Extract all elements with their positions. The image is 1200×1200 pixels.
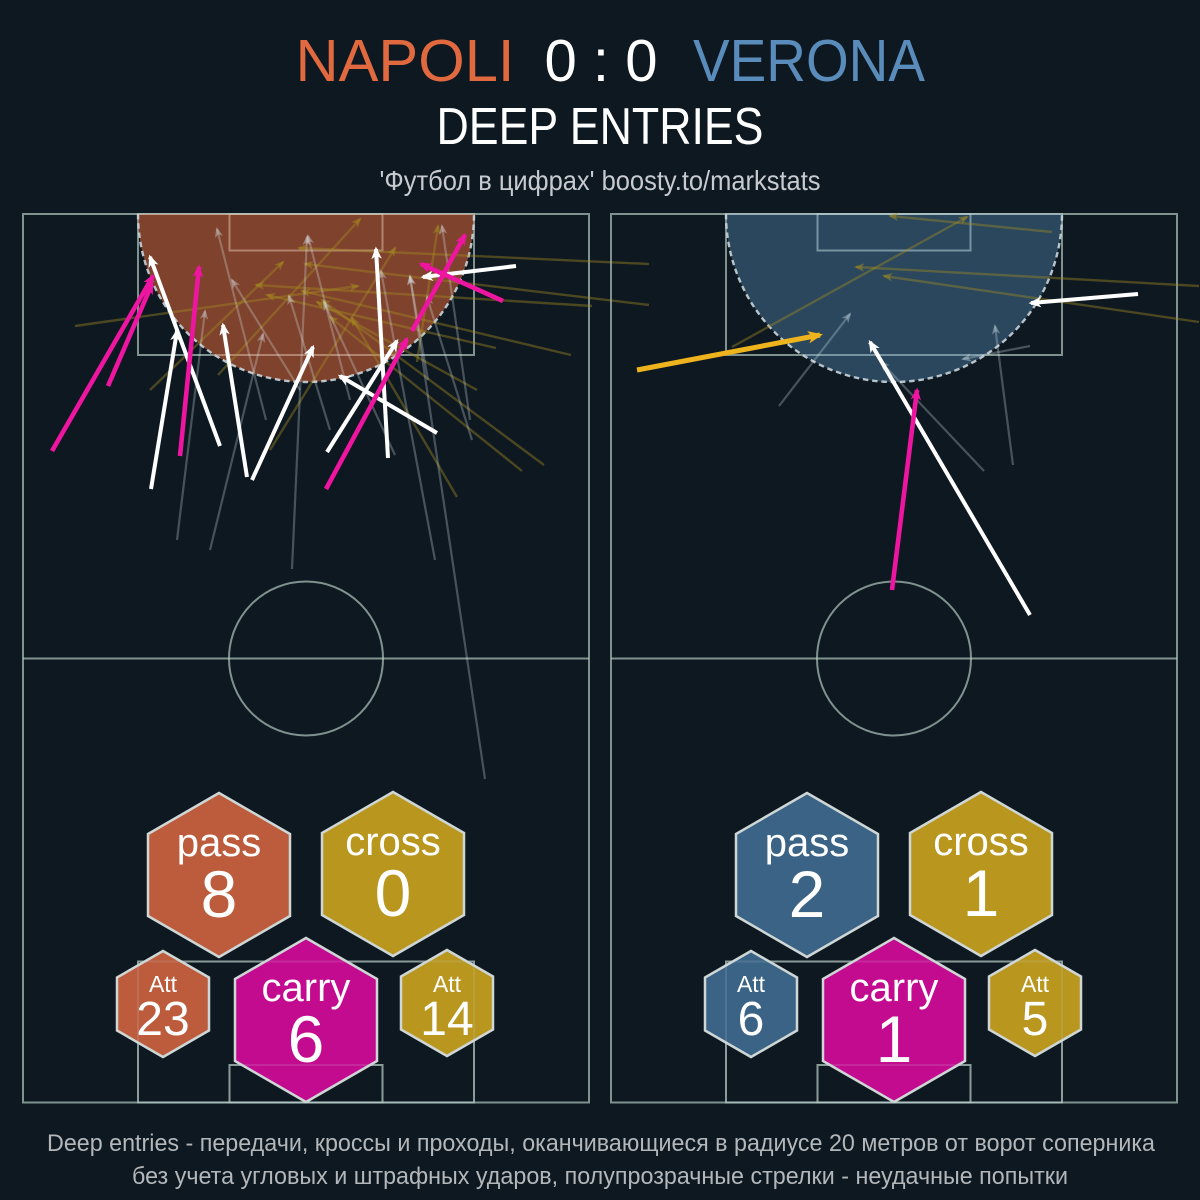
svg-text:0: 0	[375, 856, 412, 930]
svg-text:6: 6	[738, 993, 765, 1046]
svg-text:1: 1	[963, 856, 1000, 930]
svg-text:0 : 0: 0 : 0	[545, 28, 658, 94]
svg-text:23: 23	[136, 993, 189, 1046]
svg-text:Deep entries - передачи, кросс: Deep entries - передачи, кроссы и проход…	[47, 1130, 1155, 1157]
svg-text:VERONA: VERONA	[693, 28, 926, 94]
svg-text:14: 14	[420, 993, 473, 1046]
svg-text:'Футбол в цифрах' boosty.to/ma: 'Футбол в цифрах' boosty.to/markstats	[380, 165, 821, 196]
svg-text:5: 5	[1022, 993, 1049, 1046]
svg-text:2: 2	[789, 857, 826, 931]
svg-text:NAPOLI: NAPOLI	[296, 28, 515, 94]
svg-text:без учета угловых и штрафных у: без учета угловых и штрафных ударов, пол…	[132, 1163, 1068, 1190]
svg-text:DEEP ENTRIES: DEEP ENTRIES	[437, 98, 764, 156]
svg-text:8: 8	[201, 857, 238, 931]
